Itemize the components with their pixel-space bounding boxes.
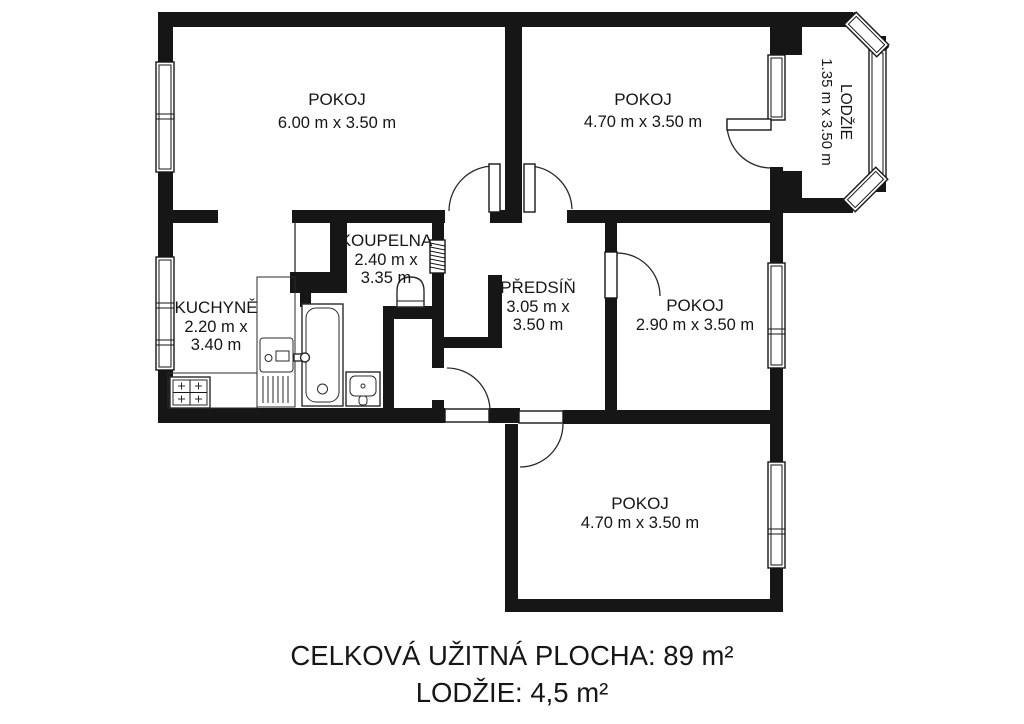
room-dims: 4.70 m x 3.50 m	[584, 113, 702, 131]
room-label-pokoj-middle-right: POKOJ 2.90 m x 3.50 m	[636, 296, 754, 334]
bathtub-icon	[294, 304, 343, 406]
door	[445, 368, 490, 422]
room-dims: 3.35 m	[361, 269, 411, 287]
wall-bottomroom-left	[505, 424, 518, 612]
room-label-pokoj-bottom: POKOJ 4.70 m x 3.50 m	[581, 494, 699, 532]
room-label-predsin: PŘEDSÍŇ 3.05 m x 3.50 m	[500, 278, 576, 334]
wall-segment	[432, 273, 444, 368]
wall-segment	[292, 210, 445, 223]
door	[524, 164, 572, 212]
room-name: PŘEDSÍŇ	[500, 278, 576, 297]
room-dims: 3.50 m	[513, 316, 563, 334]
door	[605, 252, 660, 298]
room-dims: 3.40 m	[191, 336, 241, 354]
wall-lwall-horizontal	[437, 337, 502, 348]
stove-icon	[170, 377, 210, 408]
room-label-pokoj-top-right: POKOJ 4.70 m x 3.50 m	[584, 90, 702, 131]
wall-segment	[770, 568, 783, 612]
wall-shaft-bottom	[290, 272, 347, 293]
wall-bottomroom-bottom	[505, 599, 783, 612]
wall-segment	[770, 424, 783, 462]
window	[869, 50, 886, 180]
door	[449, 164, 500, 212]
room-name: LODŽIE	[837, 84, 854, 140]
room-dims: 3.05 m x	[506, 298, 570, 316]
summary-text: CELKOVÁ UŽITNÁ PLOCHA: 89 m² LODŽIE: 4,5…	[290, 640, 733, 708]
room-dims: 2.90 m x 3.50 m	[636, 316, 754, 334]
floor-plan-page: POKOJ 6.00 m x 3.50 m POKOJ 4.70 m x 3.5…	[0, 0, 1024, 724]
room-name: POKOJ	[614, 90, 672, 109]
room-label-kuchyne: KUCHYNĚ 2.20 m x 3.40 m	[174, 298, 257, 354]
wall-segment	[770, 366, 783, 413]
window	[768, 55, 785, 120]
room-name: KUCHYNĚ	[174, 298, 257, 317]
room-name: POKOJ	[611, 494, 669, 513]
floor-plan: POKOJ 6.00 m x 3.50 m POKOJ 4.70 m x 3.5…	[0, 0, 1024, 724]
door	[727, 119, 771, 168]
room-label-lodzie: LODŽIE 1.35 m x 3.50 m	[818, 58, 854, 166]
wall-segment	[432, 210, 444, 240]
wall-segment	[489, 408, 520, 423]
room-dims: 2.20 m x	[184, 318, 248, 336]
window	[156, 257, 174, 370]
room-name: POKOJ	[308, 90, 366, 109]
room-name: POKOJ	[666, 296, 724, 315]
window	[768, 462, 785, 568]
wall-bottom-kitchen-band	[158, 408, 445, 423]
wall-segment	[158, 210, 218, 223]
room-dims: 2.40 m x	[354, 251, 418, 269]
tap-icon	[294, 353, 310, 362]
summary-line-lodzie-area: LODŽIE: 4,5 m²	[416, 677, 609, 708]
wall-balcony-block-top	[770, 13, 802, 55]
wall-segment	[567, 210, 783, 223]
window	[156, 62, 174, 172]
dishwasher-hatch	[263, 376, 288, 403]
wall-top	[158, 12, 853, 27]
window	[768, 263, 785, 368]
summary-line-total-area: CELKOVÁ UŽITNÁ PLOCHA: 89 m²	[290, 640, 733, 671]
washbasin-icon	[346, 372, 380, 406]
room-dims: 6.00 m x 3.50 m	[278, 114, 396, 132]
wall-segment	[605, 210, 617, 252]
wall-top-rooms-divider	[505, 27, 522, 223]
wall-segment	[432, 400, 444, 412]
wall-segment	[605, 298, 617, 410]
room-name: KOUPELNA	[340, 231, 433, 250]
room-dims: 4.70 m x 3.50 m	[581, 514, 699, 532]
wall-balcony-block-bottom	[770, 171, 802, 213]
room-label-pokoj-top-left: POKOJ 6.00 m x 3.50 m	[278, 90, 396, 132]
room-dims: 1.35 m x 3.50 m	[818, 58, 835, 166]
door	[519, 411, 563, 467]
wall-closet-left	[383, 306, 394, 412]
kitchen-sink-icon	[260, 338, 293, 372]
wall-middle-divider	[563, 410, 783, 424]
window	[844, 12, 889, 57]
